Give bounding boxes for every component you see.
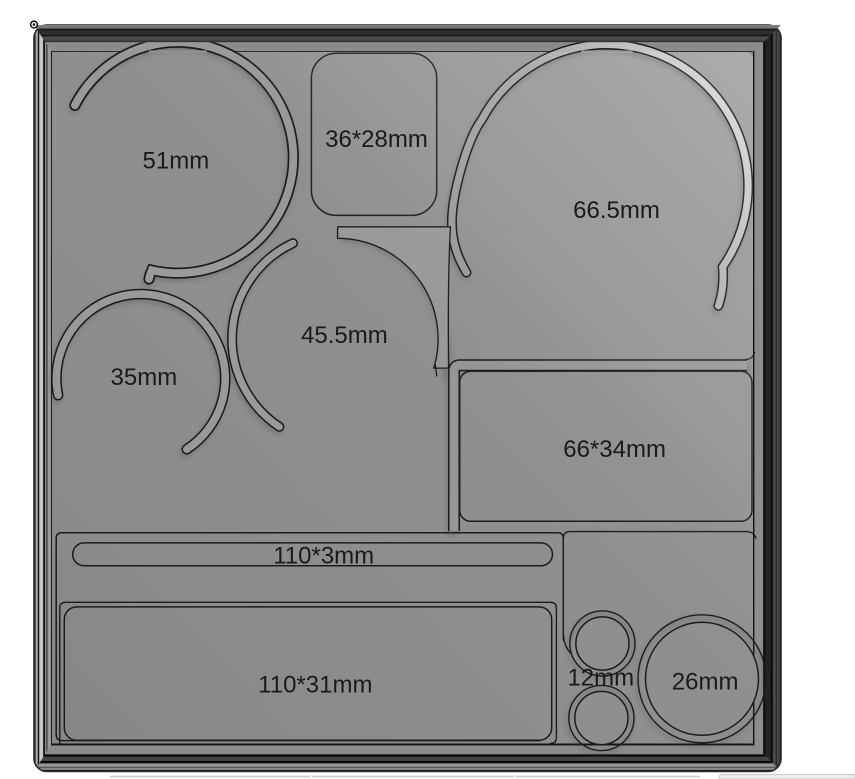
svg-text:66*34mm: 66*34mm	[563, 436, 666, 463]
svg-text:110*31mm: 110*31mm	[258, 672, 372, 699]
svg-text:45.5mm: 45.5mm	[301, 322, 388, 349]
svg-text:36*28mm: 36*28mm	[325, 126, 428, 153]
svg-text:26mm: 26mm	[672, 669, 739, 696]
svg-text:110*3mm: 110*3mm	[273, 543, 374, 570]
svg-text:35mm: 35mm	[111, 364, 178, 391]
svg-text:66.5mm: 66.5mm	[573, 197, 660, 224]
svg-text:51mm: 51mm	[143, 148, 210, 175]
svg-text:12mm: 12mm	[567, 664, 634, 691]
